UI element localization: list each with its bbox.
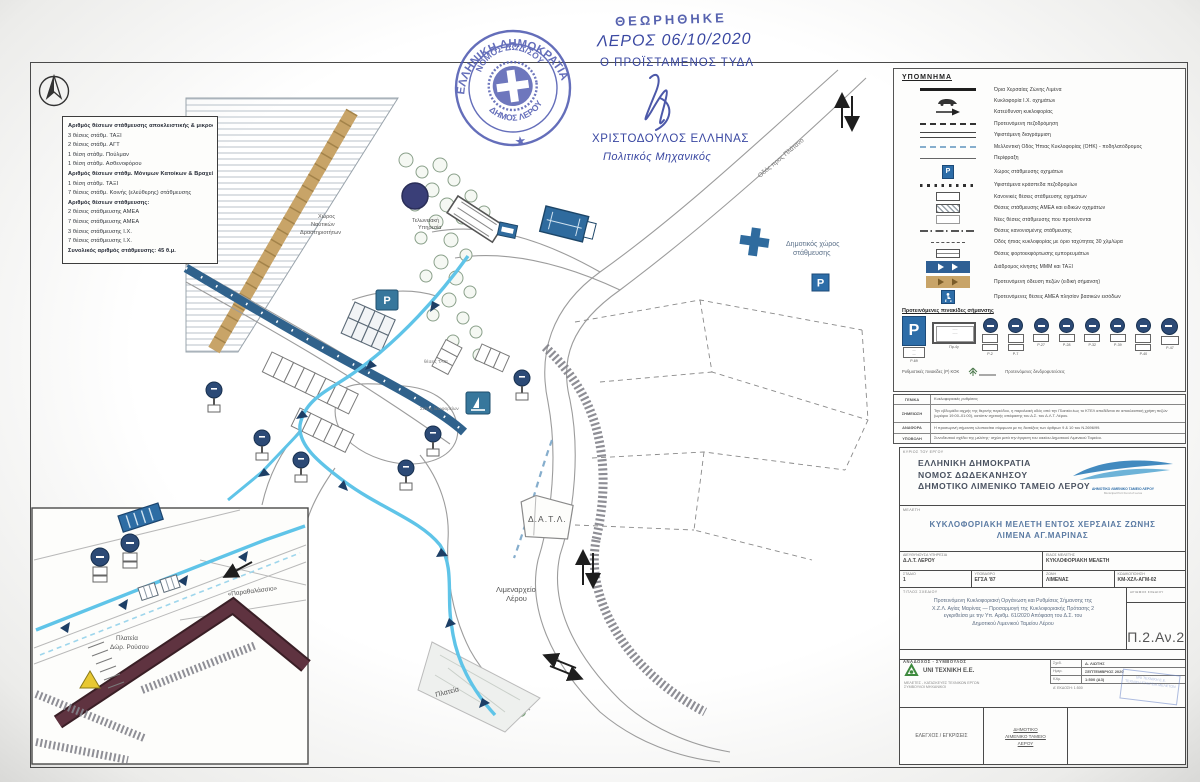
sheet-title-label: ΤΙΤΛΟΣ ΣΧΕΔΙΟΥ bbox=[903, 590, 938, 594]
big-parking-sign: P –––– Ρ-69 bbox=[902, 316, 926, 363]
legend-row: Θέσεις κανονισμένης στάθμευσης bbox=[902, 225, 1179, 236]
open-rect-symbol bbox=[936, 215, 960, 224]
amea-sign-icon bbox=[941, 290, 955, 304]
approval-place-date: ΛΕΡΟΣ 06/10/2020 bbox=[597, 31, 752, 52]
rect-info-sign: –––––– Πρ-4γ bbox=[932, 322, 976, 349]
approval-role: Ο ΠΡΟΪΣΤΑΜΕΝΟΣ ΤΥΔΛ bbox=[600, 57, 754, 69]
legend-row: Κατεύθυνση κυκλοφορίας bbox=[902, 107, 1179, 118]
north-arrow-icon bbox=[36, 70, 72, 110]
sheet-title-section: ΤΙΤΛΟΣ ΣΧΕΔΙΟΥ Προτεινόμενη Κυκλοφοριακή… bbox=[900, 588, 1185, 650]
parking-line: 7 θέσεις στάθμευσης ΑΜΕΑ bbox=[68, 218, 213, 228]
thick-line-symbol bbox=[920, 88, 976, 91]
tree-symbol bbox=[967, 363, 997, 377]
study-label: ΜΕΛΕΤΗ bbox=[903, 508, 920, 512]
field-cell: ΣΤΑΔΙΟ1 bbox=[900, 571, 972, 588]
legend-row: Διάδρομος κίνησης ΜΜΜ και ΤΑΞΙ bbox=[902, 259, 1179, 274]
thin-line-symbol bbox=[920, 158, 976, 159]
legend-row: Μελλοντική Οδός Ήπιας Κυκλοφορίας (ΟΗΚ) … bbox=[902, 141, 1179, 152]
parking-counts-box: Αριθμός θέσεων στάθμευσης αποκλειστικής … bbox=[62, 116, 218, 264]
approvals-section: ΕΛΕΓΧΟΣ / ΕΓΚΡΙΣΕΙΣ ΔΗΜΟΤΙΚΟ ΛΙΜΕΝΙΚΟ ΤΑ… bbox=[900, 708, 1185, 764]
legend-row: Κυκλοφορία Ι.Χ. οχημάτων bbox=[902, 95, 1179, 106]
title-block: ΚΥΡΙΟΣ ΤΟΥ ΕΡΓΟΥ ΕΛΛΗΝΙΚΗ ΔΗΜΟΚΡΑΤΙΑ ΝΟΜ… bbox=[899, 447, 1186, 765]
parking-sign-icon: P bbox=[942, 165, 954, 179]
empty-approval-cell bbox=[1068, 708, 1185, 764]
parking-line: 3 θέσεις στάθμευσης Ι.Χ. bbox=[68, 228, 213, 238]
parking-line: Αριθμός θέσεων στάθμευσης: bbox=[68, 199, 213, 209]
parking-line: 2 θέσεις στάθμευσης ΑΜΕΑ bbox=[68, 208, 213, 218]
notes-row: ΣΗΜΕΙΩΣΗΤην εβδομάδα αιχμής της θερινής … bbox=[894, 405, 1185, 423]
parking-line: 1 θέση στάθμ. ΤΑΞΙ bbox=[68, 180, 213, 190]
drawing-meta: Σχεδ.Δ. ΛΙΩΤΗΣ Ημερ.ΣΕΠΤΕΜΒΡΙΟΣ 2020 Κλί… bbox=[1050, 660, 1185, 708]
port-fund-logo: ΔΗΜΟΤΙΚΟ ΛΙΜΕΝΙΚΟ ΤΑΜΕΙΟ ΛΕΡΟΥ Municipal… bbox=[1067, 456, 1179, 495]
sheet-title-line: Δημοτικού Λιμενικού Ταμείου Λέρου bbox=[900, 621, 1126, 629]
inner-line-rect-symbol bbox=[936, 249, 960, 258]
check-cell: ΕΛΕΓΧΟΣ / ΕΓΚΡΙΣΕΙΣ bbox=[900, 708, 984, 764]
parking-line: Αριθμός θέσεων στάθμευσης αποκλειστικής … bbox=[68, 122, 213, 132]
legend-row: Προτεινόμενη πεζοδρόμηση bbox=[902, 118, 1179, 129]
pedestrian-band-symbol bbox=[926, 276, 970, 288]
signature bbox=[628, 70, 720, 134]
study-title-line1: ΚΥΚΛΟΦΟΡΙΑΚΗ ΜΕΛΕΤΗ ΕΝΤΟΣ ΧΕΡΣΑΙΑΣ ΖΩΝΗΣ bbox=[900, 519, 1185, 530]
legend-panel: ΥΠΟΜΝΗΜΑ Όρια Χερσαίας Ζώνης Λιμένα Κυκλ… bbox=[893, 68, 1186, 392]
parking-line: 3 θέσεις στάθμ. ΤΑΞΙ bbox=[68, 132, 213, 142]
field-cell: ΚΩΔΙΚΟΠΟΙΗΣΗΚΜ-ΧΖΛ-ΑΓΜ-02 bbox=[1115, 571, 1186, 588]
legend-row: Προτεινόμενη όδευση πεζών (ειδική σήμανσ… bbox=[902, 274, 1179, 289]
field-cell: ΕΙΔΟΣ ΜΕΛΕΤΗΣΚΥΚΛΟΦΟΡΙΑΚΗ ΜΕΛΕΤΗ bbox=[1043, 552, 1185, 570]
meta-fields-section: ΔΙΕΥΘΥΝΟΥΣΑ ΥΠΗΡΕΣΙΑΔ.Λ.Τ. ΛΕΡΟΥ ΕΙΔΟΣ Μ… bbox=[900, 552, 1185, 588]
legend-row: Οδός ήπιας κυκλοφορίας με όριο ταχύτητας… bbox=[902, 237, 1179, 248]
notes-table: ΓΕΝΙΚΑΚυκλοφοριακές ρυθμίσεις ΣΗΜΕΙΩΣΗΤη… bbox=[893, 394, 1186, 444]
scanned-traffic-plan-sheet: { "stamp": { "outer": "ΕΛΛΗΝΙΚΗ ΔΗΜΟΚΡΑΤ… bbox=[0, 0, 1200, 782]
sheet-title-line: Προτεινόμενη Κυκλοφοριακή Οργάνωση και Ρ… bbox=[900, 598, 1126, 606]
owner-label: ΚΥΡΙΟΣ ΤΟΥ ΕΡΓΟΥ bbox=[903, 450, 944, 454]
owner-section: ΚΥΡΙΟΣ ΤΟΥ ΕΡΓΟΥ ΕΛΛΗΝΙΚΗ ΔΗΜΟΚΡΑΤΙΑ ΝΟΜ… bbox=[900, 448, 1185, 506]
dash-dot-symbol bbox=[920, 230, 976, 232]
bold-dashed-symbol bbox=[920, 123, 976, 125]
study-title-line2: ΛΙΜΕΝΑ ΑΓ.ΜΑΡΙΝΑΣ bbox=[900, 530, 1185, 541]
legend-row: Υφιστάμενα κράσπεδα πεζοδρομίων bbox=[902, 180, 1179, 191]
approver-name: ΧΡΙΣΤΟΔΟΥΛΟΣ ΕΛΛΗΝΑΣ bbox=[592, 133, 749, 145]
stamp-star: ★ bbox=[514, 133, 528, 149]
notes-row: ΥΠΟΒΟΛΗΣυνοδευτικό σχέδιο της μελέτης· ι… bbox=[894, 434, 1185, 443]
double-line-symbol bbox=[920, 132, 976, 138]
round-signs-group: Ρ-2 Ρ-7 Ρ-27 Ρ-28 Ρ-32 Ρ-39 Ρ-40 Ρ-47 bbox=[982, 318, 1179, 356]
legend-row: Προτεινόμενες θέσεις ΑΜΕΑ πλησίον βασικώ… bbox=[902, 289, 1179, 305]
hatched-rect-symbol bbox=[936, 204, 960, 213]
municipality-stamp: ΕΛΛΗΝΙΚΗ ΔΗΜΟΚΡΑΤΙΑ ΝΟΜΟΣ ΔΩΔ/ΣΟΥ ΔΗΜΟΣ … bbox=[432, 8, 597, 170]
sheet-title-line: εγκριθείσα με την Υπ. Αριθμ. 61/2020 Από… bbox=[900, 613, 1126, 621]
legend-row: Νέες θέσεις στάθμευσης που προτείνονται bbox=[902, 214, 1179, 225]
legend-row: Όρια Χερσαίας Ζώνης Λιμένα bbox=[902, 84, 1179, 95]
car-icon bbox=[936, 97, 960, 106]
legend-row: Υφιστάμενη διαγράμμιση bbox=[902, 130, 1179, 141]
approver-cell: ΔΗΜΟΤΙΚΟ ΛΙΜΕΝΙΚΟ ΤΑΜΕΙΟ ΛΕΡΟΥ bbox=[984, 708, 1068, 764]
stall-rect-symbol bbox=[936, 192, 960, 201]
parking-line: 7 θέσεις στάθμ. Κοινής (ελεύθερης) στάθμ… bbox=[68, 189, 213, 199]
legend-row: Θέσεις φορτοεκφόρτωσης εμπορευμάτων bbox=[902, 248, 1179, 259]
drawing-number-label: ΑΡΙΘΜΟΣ ΣΧΕΔΙΟΥ bbox=[1130, 590, 1164, 594]
company-logo-icon bbox=[904, 663, 919, 678]
tree-note: Προτεινόμενες δενδροφυτεύσεις bbox=[1005, 369, 1065, 374]
drawing-number: Π.2.Αν.2 bbox=[1127, 629, 1184, 645]
bus-lane-symbol bbox=[926, 261, 970, 273]
legend-row: Περίφραξη bbox=[902, 152, 1179, 163]
notes-row: ΑΝΑΦΟΡΑΗ προσωρινή σήμανση υλοποιείται σ… bbox=[894, 423, 1185, 433]
parking-line: Αριθμός θέσεων στάθμ. Μόνιμων Κατοίκων &… bbox=[68, 170, 213, 180]
field-cell: ΥΠΟΒΑΘΡΟΕΓΣΑ '87 bbox=[972, 571, 1044, 588]
notes-row: ΓΕΝΙΚΑΚυκλοφοριακές ρυθμίσεις bbox=[894, 395, 1185, 405]
study-title-section: ΜΕΛΕΤΗ ΚΥΚΛΟΦΟΡΙΑΚΗ ΜΕΛΕΤΗ ΕΝΤΟΣ ΧΕΡΣΑΙΑ… bbox=[900, 506, 1185, 552]
signs-row: P –––– Ρ-69 –––––– Πρ-4γ Ρ-2 Ρ-7 Ρ-27 Ρ-… bbox=[902, 316, 1179, 363]
signs-header: Προτεινόμενες πινακίδες σήμανσης bbox=[902, 308, 1179, 314]
signs-note: Ρυθμιστικές πινακίδες (Ρ) ΚΟΚ bbox=[902, 369, 959, 374]
parking-line: 1 θέση στάθμ. Πούλμαν bbox=[68, 151, 213, 161]
field-cell: ΔΙΕΥΘΥΝΟΥΣΑ ΥΠΗΡΕΣΙΑΔ.Λ.Τ. ΛΕΡΟΥ bbox=[900, 552, 1043, 570]
direction-arrow-icon bbox=[935, 108, 961, 116]
parking-line: 2 θέσεις στάθμ. ΑΓΤ bbox=[68, 141, 213, 151]
legend-row: PΧώρος στάθμευσης οχημάτων bbox=[902, 164, 1179, 180]
contractor-company: UNI ΤΕΧΝΙΚΗ Ε.Ε. ΜΕΛΕΤΕΣ - ΚΑΤΑΣΚΕΥΕΣ ΤΕ… bbox=[900, 660, 1050, 708]
company-stamp: UNI ΤΕΧΝΙΚΗ Ε.Ε. ΤΕΧΝΙΚΗ ΕΤΑΙΡΕΙΑ ΜΕΛΕΤΩ… bbox=[1119, 669, 1180, 706]
legend-row: Θέσεις στάθμευσης ΑΜΕΑ και ειδικών οχημά… bbox=[902, 203, 1179, 214]
parking-line: Συνολικός αριθμός στάθμευσης: 45 θ.μ. bbox=[68, 247, 213, 257]
blue-dashed-symbol bbox=[920, 146, 976, 148]
legend-title: ΥΠΟΜΝΗΜΑ bbox=[902, 74, 1179, 81]
short-dash-symbol bbox=[931, 242, 965, 243]
legend-row: Κανονικές θέσεις στάθμευσης οχημάτων bbox=[902, 191, 1179, 202]
contractor-section: ΑΝΑΔΟΧΟΣ - ΣΥΜΒΟΥΛΟΣ UNI ΤΕΧΝΙΚΗ Ε.Ε. ΜΕ… bbox=[900, 650, 1185, 708]
parking-line: 7 θέσεις στάθμευσης Ι.Χ. bbox=[68, 237, 213, 247]
approver-profession: Πολιτικός Μηχανικός bbox=[603, 151, 711, 163]
field-cell: ΖΩΝΗΛΙΜΕΝΑΣ bbox=[1043, 571, 1115, 588]
parking-line: 1 θέση στάθμ. Ασθενοφόρου bbox=[68, 160, 213, 170]
dots-symbol bbox=[920, 184, 976, 187]
